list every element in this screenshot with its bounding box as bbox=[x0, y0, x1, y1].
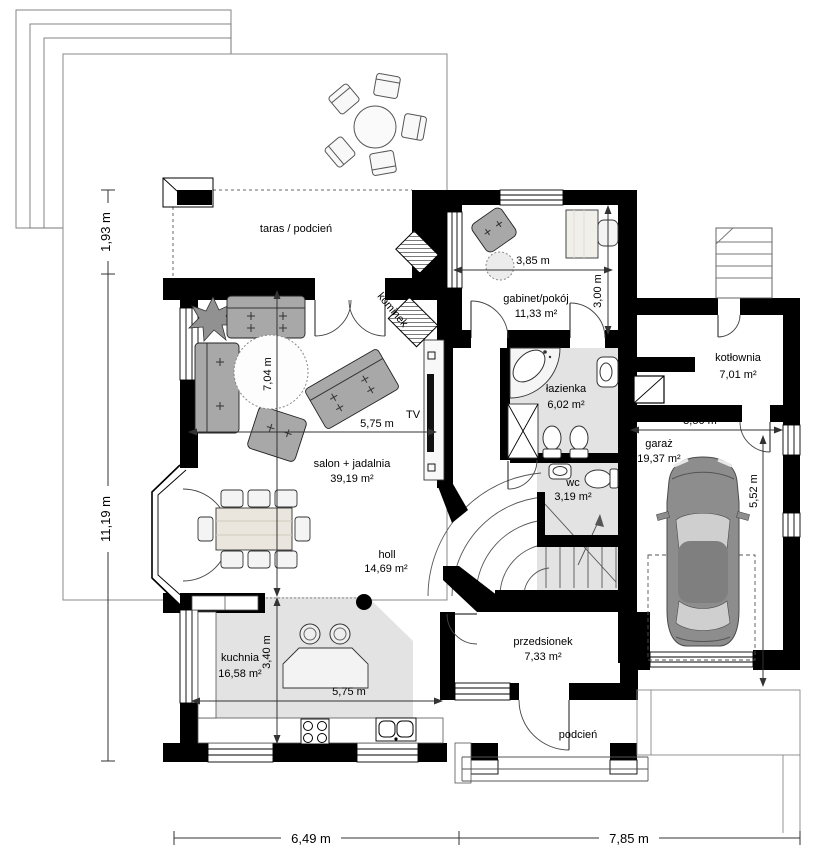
room-area-garaz: 19,37 m² bbox=[637, 453, 681, 465]
bar-stool-icon bbox=[300, 624, 320, 644]
dimension-label-kuchnia-width: 5,75 m bbox=[332, 686, 366, 698]
dining-chair-symbol bbox=[198, 517, 213, 541]
dimension-label-kuchnia-depth: 3,40 m bbox=[261, 635, 273, 669]
dimension-label-salon-width: 5,75 m bbox=[360, 418, 394, 430]
wc-toilet-symbol bbox=[585, 469, 618, 488]
shower-symbol bbox=[508, 404, 538, 458]
dining-chair-symbol bbox=[221, 490, 243, 507]
sofa-symbol bbox=[227, 296, 305, 338]
porch-columns bbox=[455, 743, 637, 783]
room-area-przedsionek: 7,33 m² bbox=[524, 651, 562, 663]
driveway-outline bbox=[637, 690, 800, 833]
floor-plan-page: 1,93 m 11,19 m 6,49 m 7,85 m 3,85 m 3,00… bbox=[0, 0, 840, 867]
dimension-label-gabinet-width: 3,85 m bbox=[516, 255, 550, 267]
dining-chair-symbol bbox=[248, 551, 270, 568]
round-rug bbox=[486, 252, 514, 280]
dimension-label-gabinet-depth: 3,00 m bbox=[592, 274, 604, 308]
patio-chair-icon bbox=[369, 150, 396, 176]
dimension-label-house-width-left: 6,49 m bbox=[291, 831, 331, 846]
structural-column bbox=[356, 594, 372, 610]
room-label-holl: holl bbox=[378, 549, 395, 561]
dimension-label-garaz-width: 3,50 m bbox=[683, 415, 717, 427]
dining-chair-symbol bbox=[221, 551, 243, 568]
car-symbol bbox=[656, 457, 749, 646]
toilet-symbol bbox=[543, 426, 561, 458]
dining-chair-symbol bbox=[275, 490, 297, 507]
dining-chair-symbol bbox=[248, 490, 270, 507]
room-label-garaz: garaż bbox=[645, 438, 673, 450]
stove-symbol bbox=[301, 719, 329, 744]
room-label-salon: salon + jadalnia bbox=[314, 458, 392, 470]
chimney-shaft bbox=[634, 376, 664, 403]
dining-chair-symbol bbox=[295, 517, 310, 541]
room-label-gabinet: gabinet/pokój bbox=[503, 293, 568, 305]
dining-chair-symbol bbox=[275, 551, 297, 568]
room-area-holl: 14,69 m² bbox=[364, 563, 408, 575]
room-label-przedsionek: przedsionek bbox=[513, 636, 573, 648]
armchair-symbol bbox=[470, 206, 519, 254]
bidet-symbol bbox=[570, 426, 588, 458]
room-area-kotlownia: 7,01 m² bbox=[719, 369, 757, 381]
tv-cabinet bbox=[424, 340, 444, 480]
desk-symbol bbox=[566, 210, 618, 258]
floor-plan: 1,93 m 11,19 m 6,49 m 7,85 m 3,85 m 3,00… bbox=[0, 0, 840, 867]
dimension-label-salon-depth: 7,04 m bbox=[262, 357, 274, 391]
corner-column bbox=[163, 178, 213, 207]
dimension-label-overhang-depth: 1,93 m bbox=[98, 212, 113, 252]
patio-chair-icon bbox=[373, 73, 400, 99]
annotation-tv: TV bbox=[406, 409, 421, 421]
tv-icon bbox=[427, 374, 434, 452]
exterior-steps bbox=[716, 228, 772, 298]
room-label-taras: taras / podcień bbox=[260, 223, 332, 235]
sink-symbol bbox=[376, 718, 416, 741]
room-label-kuchnia: kuchnia bbox=[221, 652, 260, 664]
bar-stool-icon bbox=[330, 624, 350, 644]
garage-door-symbol bbox=[650, 652, 753, 667]
room-area-lazienka: 6,02 m² bbox=[547, 399, 585, 411]
washbasin-symbol bbox=[597, 357, 618, 387]
room-area-gabinet: 11,33 m² bbox=[515, 308, 558, 320]
room-label-kotlownia: kotłownia bbox=[715, 352, 762, 364]
patio-chair-icon bbox=[401, 113, 427, 140]
sofa-symbol bbox=[195, 343, 239, 433]
room-label-podcien: podcień bbox=[559, 729, 598, 741]
room-area-salon: 39,19 m² bbox=[330, 473, 374, 485]
room-label-lazienka: łazienka bbox=[546, 383, 587, 395]
room-area-wc: 3,19 m² bbox=[554, 491, 592, 503]
room-label-wc: wc bbox=[565, 477, 580, 489]
room-area-kuchnia: 16,58 m² bbox=[218, 668, 262, 680]
dimension-label-house-width-right: 7,85 m bbox=[609, 831, 649, 846]
dimension-label-house-depth: 11,19 m bbox=[98, 496, 113, 542]
dimension-label-garaz-depth: 5,52 m bbox=[748, 474, 760, 508]
